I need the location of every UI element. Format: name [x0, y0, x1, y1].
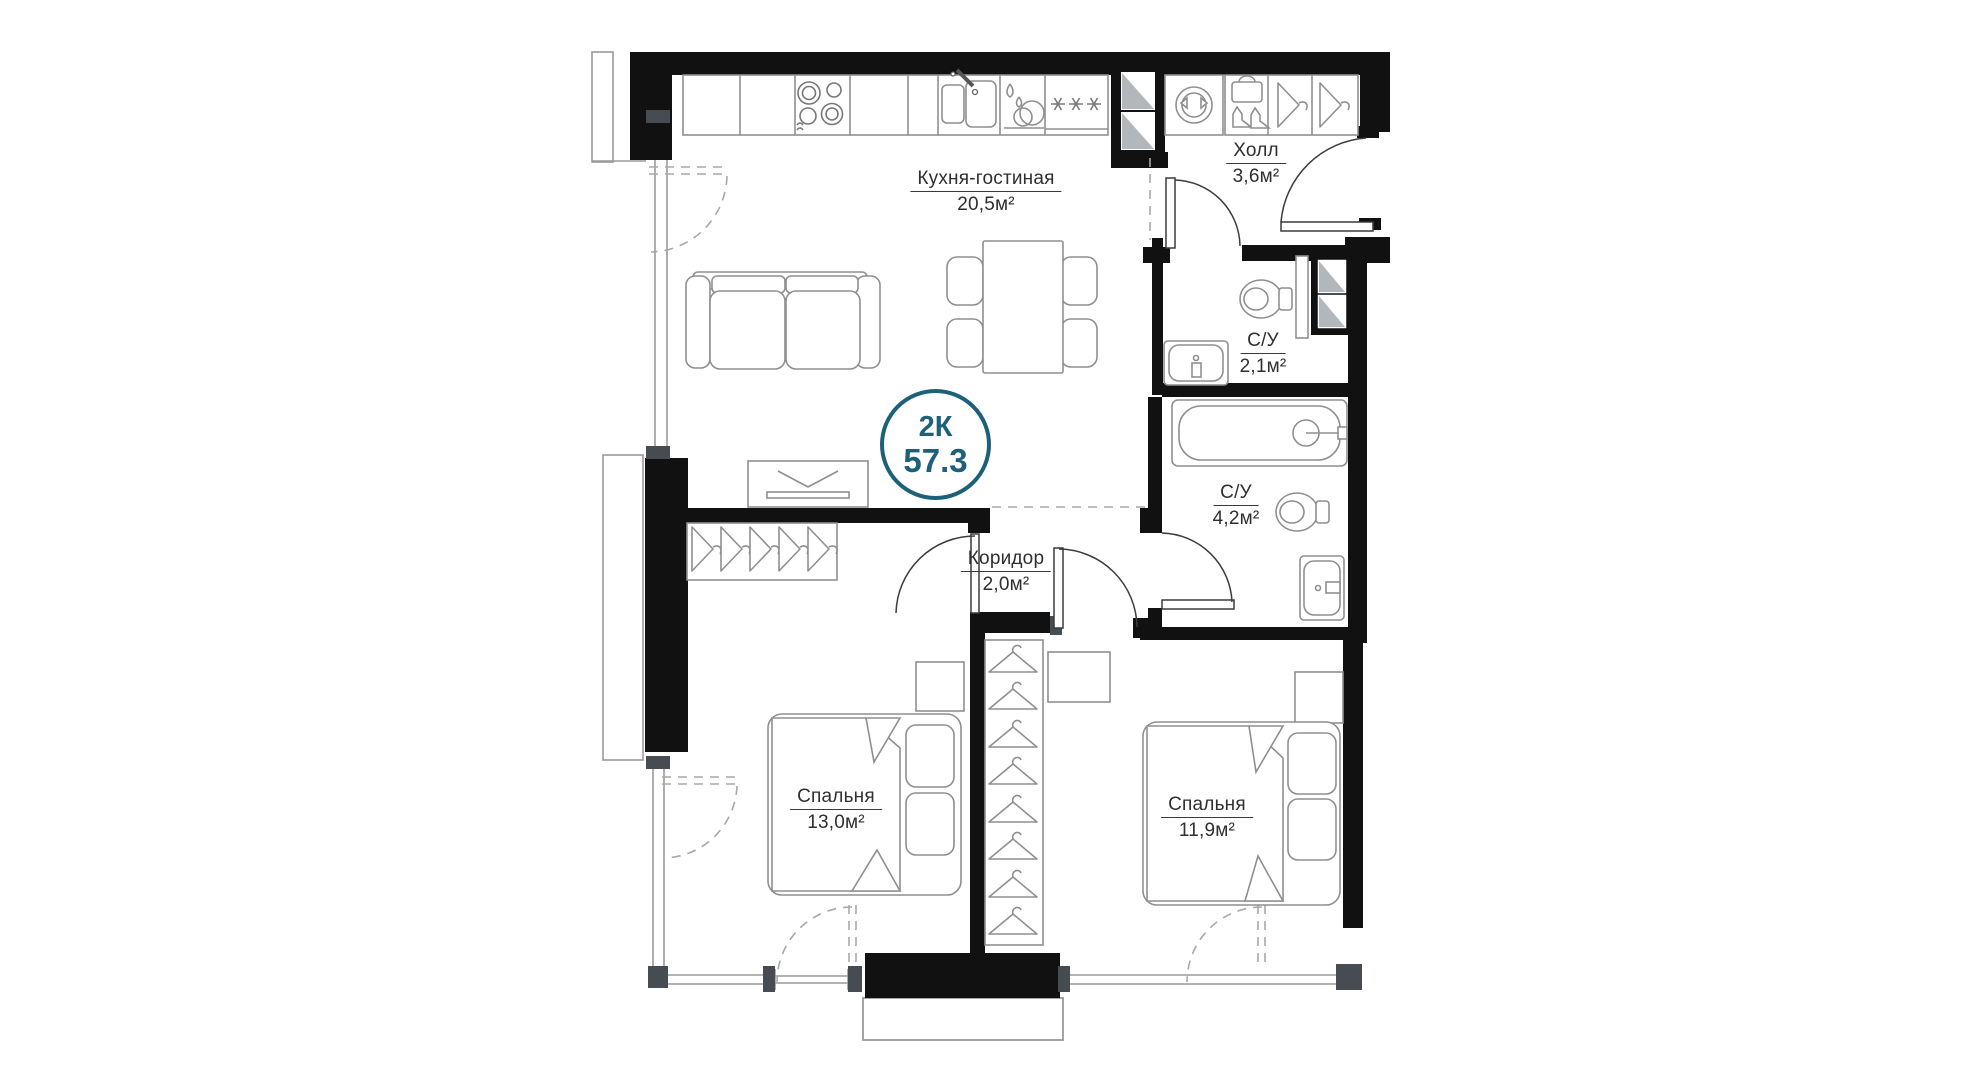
- pillow-icon: [1288, 733, 1336, 794]
- washbasin-icon: [1300, 556, 1344, 620]
- room-name: Холл: [1226, 140, 1286, 164]
- room-area: 2,0м²: [961, 572, 1051, 595]
- kitchen-counter: [683, 75, 1108, 135]
- pillow-icon: [906, 793, 954, 855]
- washing-machine-icon: [1165, 75, 1223, 135]
- toilet-icon: [1240, 280, 1292, 318]
- tv-stand-icon: [748, 461, 868, 507]
- dresser-icon: [1295, 672, 1343, 723]
- dining-table-icon: [983, 241, 1063, 373]
- bathtub-icon: [1172, 400, 1347, 466]
- ventilation-shaft-icon: [1311, 253, 1353, 335]
- room-name: С/У: [1213, 482, 1259, 506]
- room-name: Спальня: [1161, 794, 1253, 818]
- room-label-bath-small: С/У 2,1м²: [1240, 330, 1287, 378]
- nightstand-icon: [916, 662, 964, 711]
- room-name: Спальня: [790, 786, 882, 810]
- pillow-icon: [906, 725, 954, 787]
- room-label-bedroom-right: Спальня 11,9м²: [1161, 794, 1253, 842]
- room-area: 13,0м²: [790, 810, 882, 833]
- room-area: 4,2м²: [1213, 506, 1260, 529]
- room-area: 11,9м²: [1161, 818, 1253, 841]
- sofa-icon: [686, 272, 880, 369]
- room-label-hall: Холл 3,6м²: [1226, 140, 1286, 188]
- room-name: Коридор: [961, 548, 1051, 572]
- room-label-bath-big: С/У 4,2м²: [1213, 482, 1260, 530]
- apartment-badge: 2К 57.3: [880, 389, 991, 500]
- room-name: С/У: [1240, 330, 1286, 354]
- window-frame: [592, 52, 613, 162]
- bed-icon: [1048, 652, 1343, 905]
- towel-rail: [1296, 256, 1308, 338]
- entrance-door: [1281, 138, 1373, 231]
- room-area: 2,1м²: [1240, 354, 1287, 377]
- chair-icon: [1061, 257, 1097, 305]
- bedroom-right-door: [1054, 548, 1137, 628]
- washbasin-icon: [1164, 341, 1228, 385]
- ventilation-shaft-icon: [1120, 71, 1156, 151]
- chair-icon: [947, 257, 983, 305]
- chair-icon: [1061, 319, 1097, 367]
- window-frame: [603, 455, 643, 760]
- room-area: 20,5м²: [910, 192, 1061, 215]
- apartment-total-area: 57.3: [903, 444, 967, 477]
- wall-segment: [630, 52, 1390, 75]
- bathroom-big-door: [1162, 533, 1234, 609]
- balcony: [863, 998, 1063, 1040]
- room-label-corridor: Коридор 2,0м²: [961, 548, 1051, 596]
- apartment-type: 2К: [919, 413, 953, 442]
- closet-icon: [985, 640, 1043, 945]
- dining-set-icon: [947, 241, 1097, 373]
- toilet-icon: [1276, 493, 1329, 531]
- bedroom-left-wardrobe-icon: [687, 523, 837, 580]
- pillow-icon: [1288, 799, 1336, 860]
- room-label-kitchen-living: Кухня-гостиная 20,5м²: [910, 168, 1061, 216]
- bag-icon: [1232, 82, 1262, 102]
- room-name: Кухня-гостиная: [910, 168, 1061, 192]
- floor-plan-drawing: [0, 0, 1980, 1080]
- bathroom-small-door: [1166, 178, 1240, 248]
- bed-icon: [768, 662, 964, 895]
- hall-wardrobe-icon: [1225, 75, 1358, 135]
- room-label-bedroom-left: Спальня 13,0м²: [790, 786, 882, 834]
- chair-icon: [947, 319, 983, 367]
- nightstand-icon: [1048, 652, 1110, 702]
- floor-plan-page: Кухня-гостиная 20,5м² Холл 3,6м² С/У 2,1…: [0, 0, 1980, 1080]
- room-area: 3,6м²: [1226, 164, 1286, 187]
